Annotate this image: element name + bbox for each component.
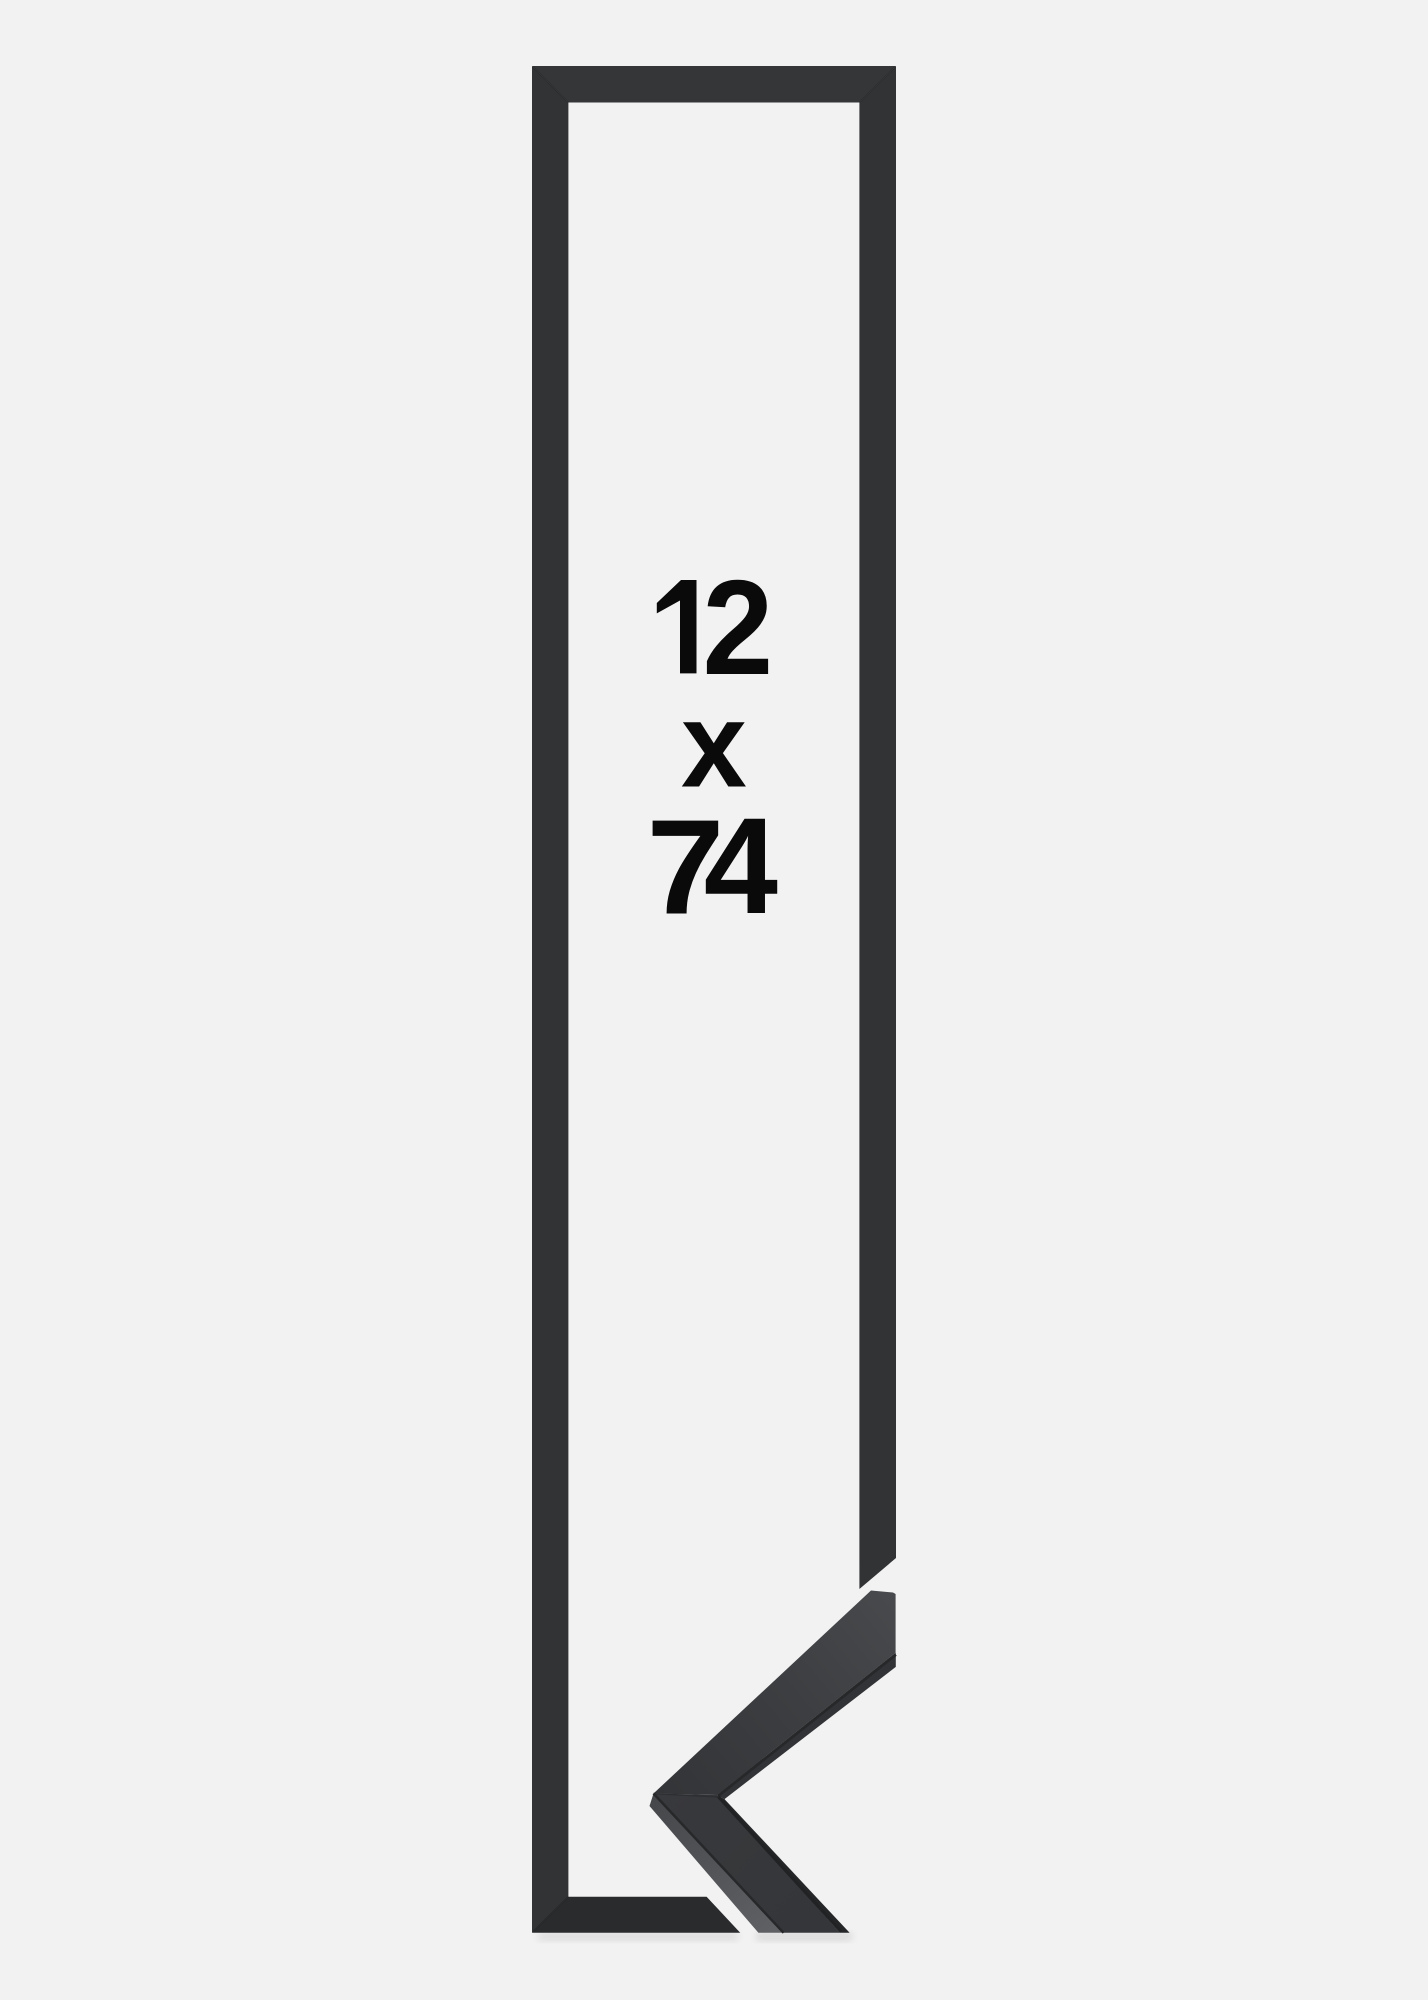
- svg-text:4: 4: [704, 789, 778, 942]
